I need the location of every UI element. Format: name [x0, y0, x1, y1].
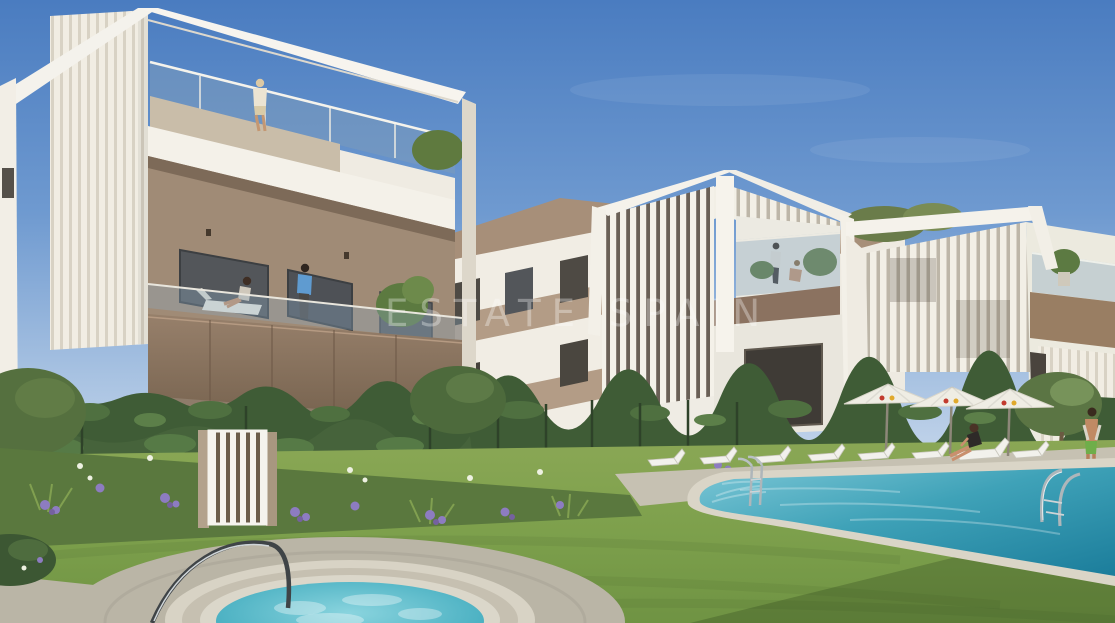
garden-tree [410, 366, 506, 434]
parasol-logo [880, 396, 885, 401]
gate-post [266, 432, 277, 526]
gate-slats [209, 431, 266, 524]
gate-post [198, 430, 209, 528]
parasol-logo [1002, 401, 1007, 406]
cloud-wisp [810, 137, 1030, 163]
ceiling-light [206, 229, 211, 236]
window [560, 339, 588, 387]
cloud-wisp [570, 74, 870, 106]
parasol-logo [944, 399, 949, 404]
garden-gate [198, 430, 277, 528]
window [2, 168, 14, 198]
parasol-logo [890, 396, 895, 401]
parasol-logo [954, 399, 959, 404]
render-image: ESTATE SPAIN [0, 0, 1115, 623]
roof-plant [412, 130, 464, 170]
balcony-glass-railing [736, 232, 840, 296]
planter [1058, 272, 1070, 286]
ceiling-light [344, 252, 349, 259]
scene-canvas: ESTATE SPAIN [0, 0, 1115, 623]
watermark: ESTATE SPAIN [385, 292, 771, 335]
parasol-logo [1012, 401, 1017, 406]
